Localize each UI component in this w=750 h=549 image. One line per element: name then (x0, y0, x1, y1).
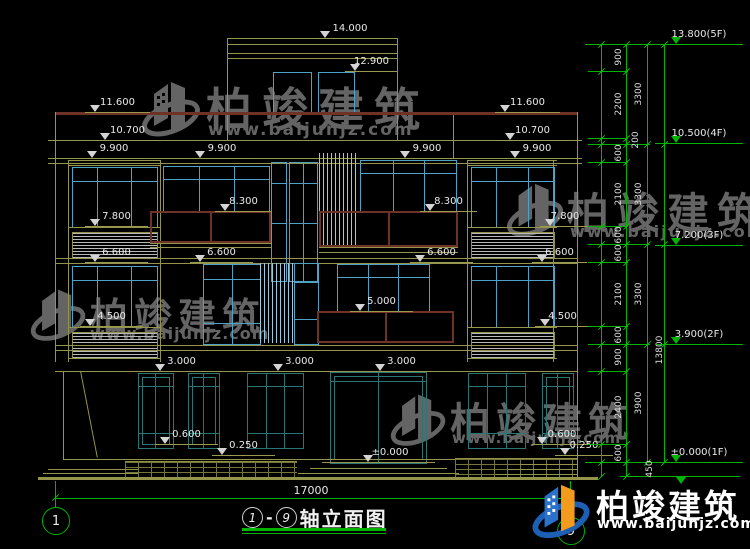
level-marker: 14.000 (315, 21, 385, 39)
floor-band-line (55, 350, 578, 351)
title-underline (242, 533, 386, 534)
left-wall-line (55, 112, 56, 362)
side-steps (520, 464, 577, 465)
bulkhead-parapet-line (227, 44, 398, 45)
level-value: 11.600 (100, 97, 135, 108)
floor-level-marker: 7.200(3F) (655, 228, 743, 246)
bay-cap-line (68, 160, 160, 161)
title-axis-bubble-from: 1 (242, 507, 263, 528)
total-width-value: 17000 (281, 484, 341, 497)
level-value: 8.300 (229, 196, 258, 207)
level-marker: ±0.000 (358, 445, 422, 463)
bulkhead-window (273, 72, 312, 114)
level-triangle-icon (355, 304, 365, 311)
level-value: 0.250 (229, 440, 258, 451)
bay-side-line (160, 160, 161, 362)
dimension-label: 2100 (614, 272, 624, 316)
level-marker: 0.250 (212, 438, 275, 456)
axis-number: 9 (282, 511, 290, 525)
dimension-label: 3300 (634, 172, 644, 216)
level-triangle-icon (273, 364, 283, 371)
level-marker: 9.900 (395, 141, 459, 159)
level-value: 7.800 (102, 211, 131, 222)
level-triangle-icon (320, 31, 330, 38)
brick-plinth (455, 458, 577, 478)
dimension-label: 2200 (614, 82, 624, 126)
level-marker: 9.900 (505, 141, 569, 159)
level-value: 14.000 (333, 23, 368, 34)
brand-logo-icon (531, 477, 593, 543)
floor-level-marker: 3.900(2F) (655, 327, 743, 345)
level-triangle-icon (560, 448, 570, 455)
axis-extension-line (55, 481, 56, 507)
level-triangle-icon (195, 151, 205, 158)
side-steps (48, 469, 138, 470)
brick-plinth (125, 461, 297, 478)
level-value: 4.500 (97, 311, 126, 322)
dimension-label: 3300 (634, 72, 644, 116)
level-value: 4.500 (548, 311, 577, 322)
side-steps (496, 474, 577, 475)
dimension-label: 900 (614, 335, 624, 379)
level-value: 11.600 (510, 97, 545, 108)
ground-window (468, 373, 526, 449)
level-triangle-icon (85, 319, 95, 326)
dimension-label: 600 (614, 431, 624, 475)
bay-base-line (467, 358, 557, 359)
dimension-chain-line (664, 44, 665, 462)
level-value: 6.600 (427, 247, 456, 258)
entrance-steps (298, 473, 459, 474)
window (203, 264, 261, 345)
level-marker: 10.700 (500, 123, 565, 141)
title-axis-bubble-to: 9 (276, 507, 297, 528)
title-underline (242, 528, 386, 531)
level-marker: 3.000 (150, 354, 213, 372)
stair-window (294, 263, 319, 345)
dimension-label: 2400 (614, 385, 624, 429)
level-value: 3.000 (387, 356, 416, 367)
level-value: 3.000 (167, 356, 196, 367)
total-width-dimension-line (55, 498, 570, 499)
level-triangle-icon (537, 255, 547, 262)
level-triangle-icon (90, 219, 100, 226)
watermark-site-text: www.baijunjz.com (208, 120, 414, 140)
level-triangle-icon (500, 105, 510, 112)
level-value: 10.700 (110, 125, 145, 136)
level-marker: 8.300 (420, 194, 477, 212)
level-triangle-icon (100, 133, 110, 140)
level-value: 0.600 (172, 429, 201, 440)
level-value: ±0.000 (371, 447, 408, 458)
level-value: 7.200(3F) (675, 230, 724, 241)
level-marker: 5.000 (350, 294, 413, 312)
level-triangle-icon (375, 364, 385, 371)
level-triangle-icon (671, 337, 681, 344)
level-value: 3.000 (285, 356, 314, 367)
dimension-label: 3900 (634, 381, 644, 425)
level-triangle-icon (220, 204, 230, 211)
below-grade-marker (660, 459, 740, 477)
level-triangle-icon (540, 319, 550, 326)
level-marker: 4.500 (535, 309, 590, 327)
brand-logo-site: www.baijunjz.com (597, 516, 750, 532)
level-marker: 11.600 (85, 95, 150, 113)
balcony-railing (317, 311, 454, 343)
level-marker: 9.900 (82, 141, 146, 159)
level-marker: 3.000 (370, 354, 433, 372)
dimension-label: 2100 (614, 172, 624, 216)
level-marker: 10.700 (95, 123, 160, 141)
level-triangle-icon (510, 151, 520, 158)
level-triangle-icon (671, 136, 681, 143)
level-value: 9.900 (100, 143, 129, 154)
level-marker: 8.300 (215, 194, 272, 212)
level-marker: 11.600 (495, 95, 560, 113)
dimension-label: 600 (614, 231, 624, 275)
level-marker: 4.500 (80, 309, 143, 327)
dimension-tick (598, 473, 605, 480)
floor-band-line (55, 345, 578, 346)
title-dash: - (266, 508, 273, 527)
level-value: 5.000 (367, 296, 396, 307)
level-triangle-icon (671, 37, 681, 44)
level-marker: 7.800 (540, 209, 590, 227)
level-triangle-icon (363, 455, 373, 462)
elevation-drawing-canvas: 柏竣建筑 www.baijunjz.com 柏竣建筑 www.baijunjz.… (0, 0, 750, 549)
dimension-label: 600 (614, 131, 624, 175)
level-value: 10.700 (515, 125, 550, 136)
balcony-railing (319, 211, 458, 247)
level-value: 6.600 (545, 247, 574, 258)
floor-level-marker: 10.500(4F) (655, 126, 743, 144)
floor-level-marker: 13.800(5F) (655, 27, 743, 45)
louver-screen (260, 263, 293, 343)
level-marker: 6.600 (532, 245, 587, 263)
level-value: 9.900 (413, 143, 442, 154)
bay-cap-line (68, 165, 160, 166)
bulkhead-wall-line (227, 38, 228, 140)
level-triangle-icon (195, 255, 205, 262)
level-triangle-icon (671, 238, 681, 245)
balcony-railing (150, 211, 271, 243)
ground-line (38, 477, 598, 480)
bay-sill-line (467, 327, 557, 328)
ramp-edge-line (80, 371, 98, 458)
level-triangle-icon (90, 105, 100, 112)
level-marker: 6.600 (85, 245, 148, 263)
level-value: 9.900 (523, 143, 552, 154)
bay-sill-line (68, 227, 160, 228)
level-triangle-icon (350, 64, 360, 71)
level-marker: 9.900 (190, 141, 254, 159)
level-value: 6.600 (207, 247, 236, 258)
level-marker: 0.600 (155, 427, 218, 445)
axis-number: 1 (52, 514, 60, 529)
level-triangle-icon (400, 151, 410, 158)
level-value: 3.900(2F) (675, 329, 724, 340)
bay-cap-line (467, 165, 557, 166)
ground-wall-line (63, 371, 64, 460)
level-triangle-icon (90, 255, 100, 262)
balcony-slab-line (150, 243, 272, 244)
level-marker: 3.000 (268, 354, 331, 372)
bay-cap-line (467, 160, 557, 161)
axis-number: 1 (249, 511, 257, 525)
level-value: 8.300 (434, 196, 463, 207)
level-triangle-icon (155, 364, 165, 371)
side-steps (508, 469, 577, 470)
dimension-label: 200 (631, 118, 641, 162)
level-value: 6.600 (102, 247, 131, 258)
level-marker: 7.800 (85, 209, 148, 227)
axis-bubble-1: 1 (42, 507, 70, 535)
level-triangle-icon (537, 437, 547, 444)
level-marker: 6.600 (190, 245, 253, 263)
bay-sill-line (68, 327, 160, 328)
level-triangle-icon (545, 219, 555, 226)
bay-side-line (68, 160, 69, 362)
level-triangle-icon (160, 437, 170, 444)
level-value: 9.900 (208, 143, 237, 154)
right-wall-line (577, 112, 578, 477)
level-triangle-icon (425, 204, 435, 211)
bulkhead-window (318, 72, 355, 114)
dimension-label: 900 (614, 35, 624, 79)
side-steps (43, 473, 138, 474)
level-marker: 6.600 (410, 245, 473, 263)
entrance-steps (310, 468, 447, 469)
level-triangle-icon (415, 255, 425, 262)
level-triangle-icon (505, 133, 515, 140)
level-marker: 12.900 (345, 54, 398, 72)
level-triangle-icon (217, 448, 227, 455)
bay-base-line (68, 358, 160, 359)
dimension-label: 3300 (634, 272, 644, 316)
bay-sill-line (467, 227, 557, 228)
level-value: 0.250 (570, 440, 599, 451)
dimension-chain-line (647, 44, 648, 462)
level-triangle-icon (87, 151, 97, 158)
